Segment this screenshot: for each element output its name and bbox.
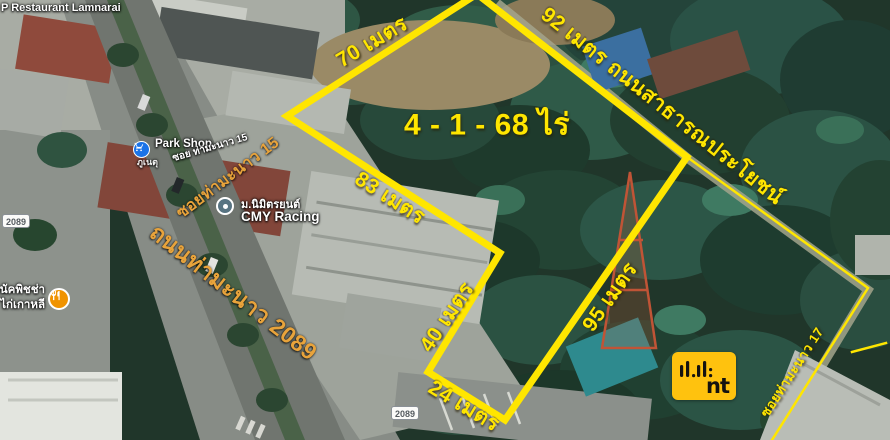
nt-logo-text: nt [706, 374, 729, 398]
cmy-racing-label-line2[interactable]: CMY Racing [241, 209, 320, 224]
plot-boundary-overlay [0, 0, 890, 440]
route-badge-2089-bottom: 2089 [391, 406, 419, 420]
satellite-map: 4 - 1 - 68 ไร่ 70 เมตร 92 เมตร ถนนสาธารณ… [0, 0, 890, 440]
park-shop-sublabel: ภูเนตุ [137, 155, 158, 169]
pizza-label-line2[interactable]: & ไก่เกาหลี [0, 296, 45, 314]
poi-restaurant-top-label[interactable]: P Restaurant Lamnarai [1, 2, 121, 14]
route-badge-2089-left: 2089 [2, 214, 30, 228]
soi17-leader-line [852, 343, 886, 352]
area-label: 4 - 1 - 68 ไร่ [404, 102, 570, 149]
nt-logo: nt [672, 352, 736, 400]
restaurant-fork-knife-icon[interactable] [48, 288, 70, 310]
